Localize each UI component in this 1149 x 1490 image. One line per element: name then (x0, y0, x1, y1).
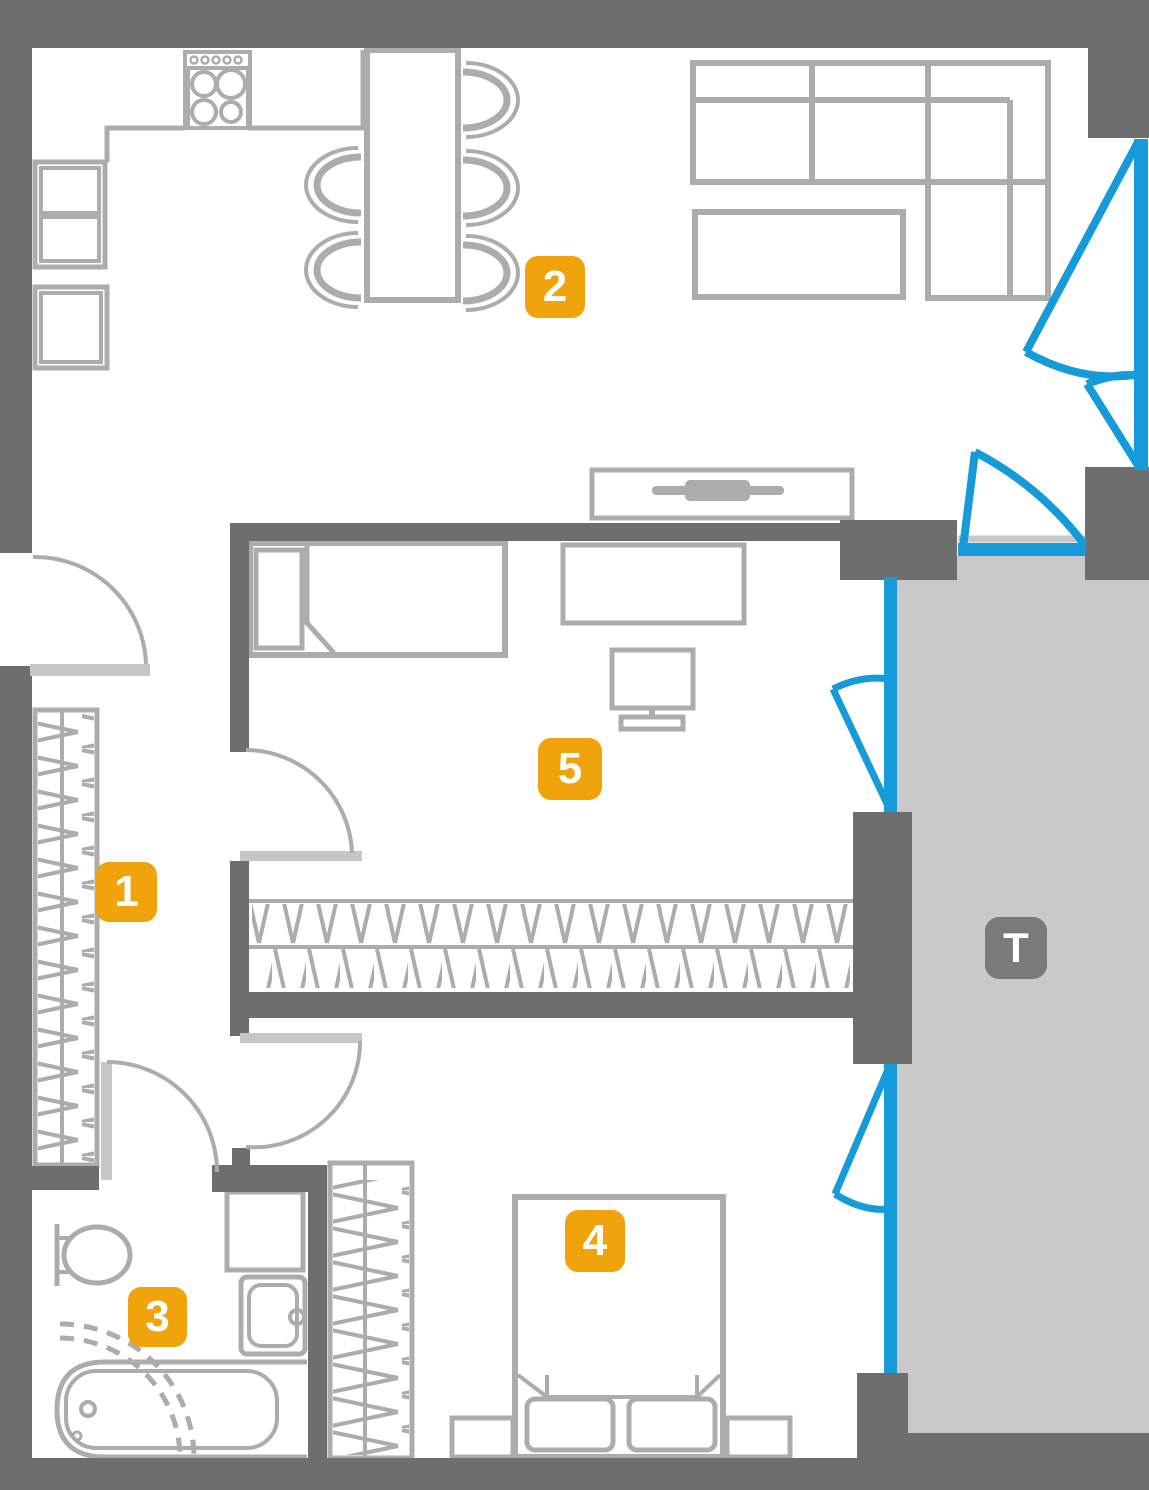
wall-living-terrace-pier (840, 520, 957, 580)
terrace (897, 539, 1149, 1433)
wall-left-upper (0, 0, 32, 553)
wall-bottom-right (908, 1433, 1149, 1490)
room-badge-4: 4 (565, 1210, 625, 1272)
wall-terrace-pier-low (857, 1373, 908, 1458)
wall-hall-lower (230, 861, 249, 1036)
wall-top-right-corner (1088, 0, 1149, 138)
wardrobe-hall (35, 710, 97, 1165)
wall-room5-top (230, 523, 857, 541)
wall-right-pier (1085, 467, 1149, 580)
wall-terrace-pier-mid (853, 812, 912, 1064)
wall-hall-upper (230, 523, 249, 752)
wardrobe-room5 (249, 901, 853, 988)
wall-room4-stub (232, 1148, 250, 1166)
wall-bath-right (308, 1192, 327, 1458)
wall-room5-room4 (249, 992, 853, 1018)
wall-bath-top-right (212, 1165, 327, 1192)
wall-top (0, 0, 1149, 48)
room-badge-3: 3 (128, 1287, 187, 1347)
wall-left-lower (0, 666, 32, 1490)
room-badge-2: 2 (525, 256, 585, 318)
wall-bath-top-left (32, 1166, 99, 1190)
terrace-badge: T (985, 917, 1047, 979)
wardrobe-bedroom (330, 1163, 412, 1458)
room-badge-5: 5 (538, 738, 602, 800)
room-badge-1: 1 (96, 862, 157, 922)
wall-bottom-left (0, 1458, 908, 1490)
floor-plan: 1 2 3 4 5 T (0, 0, 1149, 1490)
